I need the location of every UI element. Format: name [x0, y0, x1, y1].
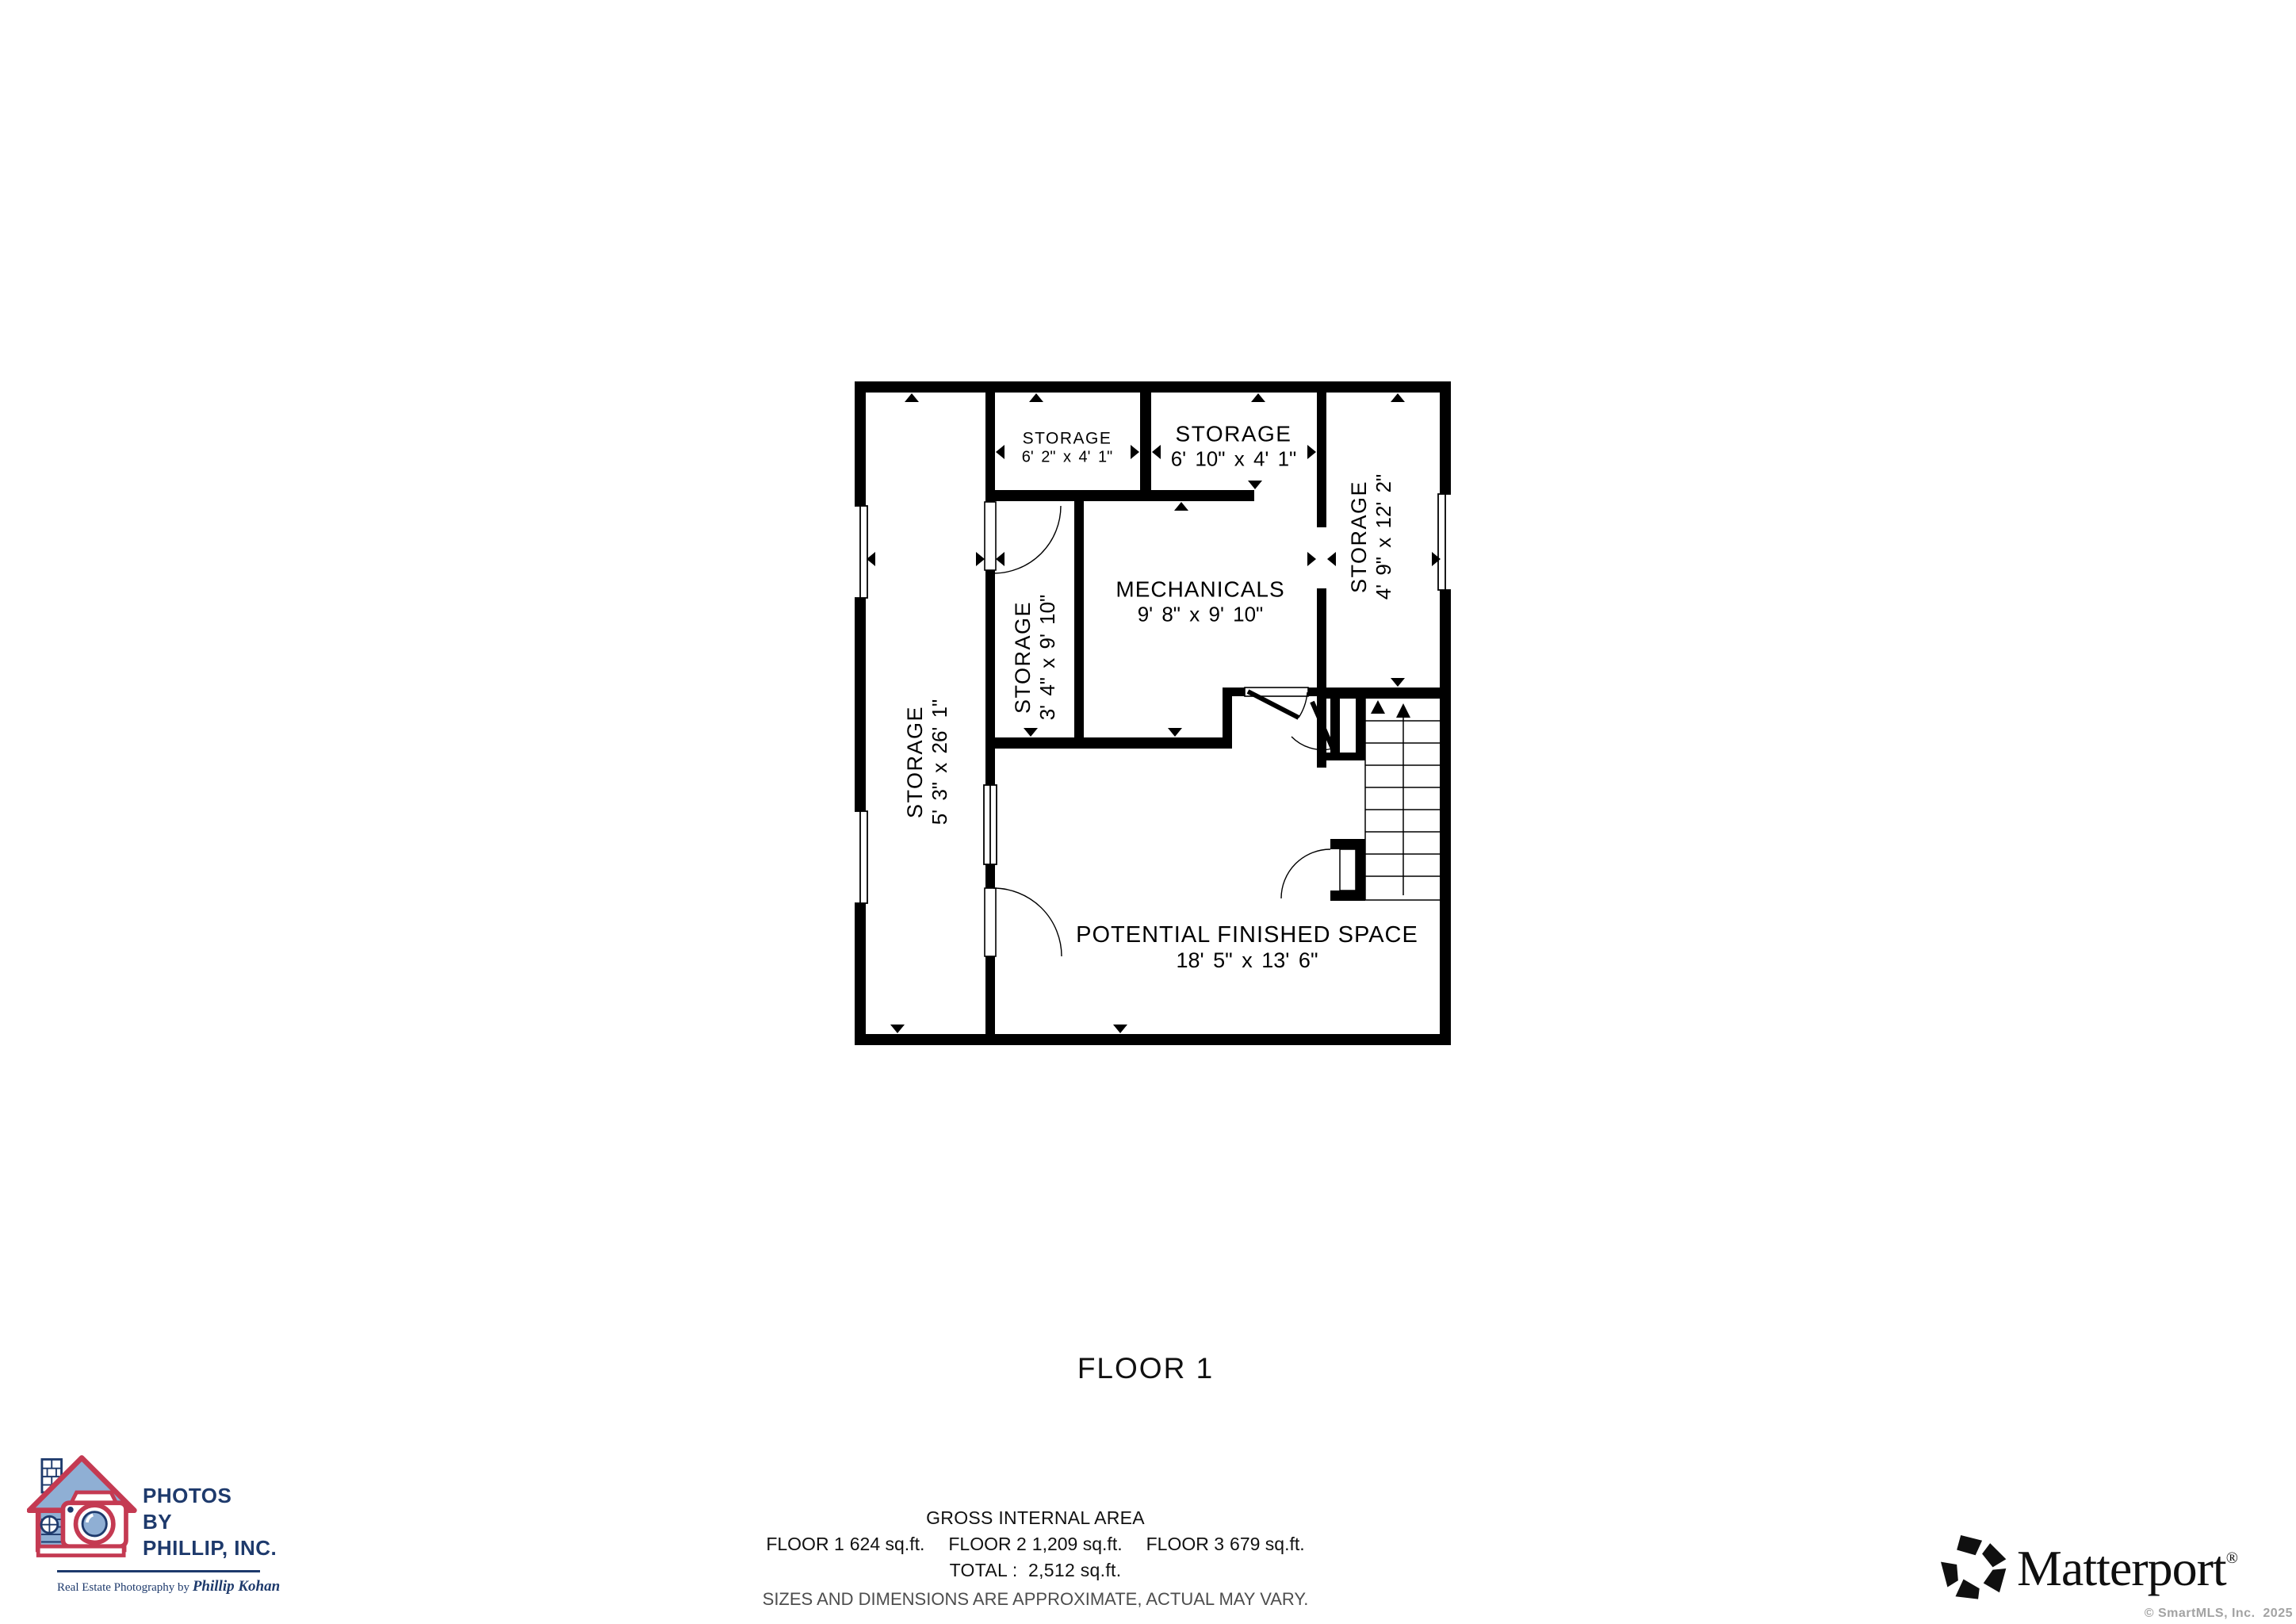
window-right — [1438, 494, 1451, 590]
room-label-storage-top2: STORAGE 6' 10" x 4' 1" — [1171, 422, 1297, 472]
stair-up-arrow-icon — [1396, 703, 1410, 718]
floor-area-2: FLOOR 21,209 sq.ft. — [948, 1534, 1122, 1555]
matterport-logo-icon — [1941, 1534, 2007, 1603]
summary-total: TOTAL : 2,512 sq.ft. — [763, 1560, 1309, 1581]
room-label-storage-top1: STORAGE 6' 2" x 4' 1" — [1022, 430, 1113, 467]
door-storage-mid — [985, 502, 996, 570]
summary-floor-areas: FLOOR 1624 sq.ft. FLOOR 21,209 sq.ft. FL… — [763, 1534, 1309, 1555]
photographer-logo: PHOTOS BY PHILLIP, INC. Real Estate Phot… — [27, 1453, 289, 1603]
copyright-text: © SmartMLS, Inc. 2025 — [2145, 1607, 2293, 1621]
logo-divider — [57, 1570, 260, 1572]
staircase — [1365, 699, 1440, 900]
floor-plan: STORAGE 5' 3" x 26' 1" STORAGE 3' 4" x 9… — [855, 381, 1451, 1045]
room-label-mechanicals: MECHANICALS 9' 8" x 9' 10" — [1115, 577, 1284, 627]
photographer-name: PHOTOS BY PHILLIP, INC. — [143, 1483, 277, 1561]
photographer-tagline: Real Estate Photography by Phillip Kohan — [57, 1578, 280, 1595]
window-left-upper — [855, 506, 867, 598]
matterport-branding: Matterport® © SmartMLS, Inc. 2025 — [1941, 1530, 2296, 1624]
floor-title: FLOOR 1 — [1077, 1352, 1214, 1385]
matterport-wordmark: Matterport® — [2017, 1543, 2238, 1594]
window-left-lower — [855, 811, 867, 903]
floor-plan-page: { "floor_plan": { "rooms": { "storage_le… — [0, 0, 2296, 1624]
area-summary: GROSS INTERNAL AREA FLOOR 1624 sq.ft. FL… — [763, 1507, 1309, 1610]
floor-area-3: FLOOR 3679 sq.ft. — [1146, 1534, 1305, 1555]
registered-mark: ® — [2226, 1549, 2238, 1567]
house-camera-icon — [27, 1453, 140, 1561]
door-stair-closet — [1281, 849, 1330, 898]
floor-area-1: FLOOR 1624 sq.ft. — [766, 1534, 924, 1555]
summary-disclaimer: SIZES AND DIMENSIONS ARE APPROXIMATE, AC… — [763, 1589, 1309, 1610]
room-label-potential-finished-space: POTENTIAL FINISHED SPACE 18' 5" x 13' 6" — [1076, 922, 1418, 973]
room-label-storage-left: STORAGE 5' 3" x 26' 1" — [903, 699, 952, 825]
door-finished-space — [985, 888, 996, 956]
stair-up-arrow-bold-icon — [1371, 700, 1385, 714]
room-label-storage-mid: STORAGE 3' 4" x 9' 10" — [1011, 595, 1060, 721]
summary-heading: GROSS INTERNAL AREA — [763, 1507, 1309, 1529]
room-label-storage-right: STORAGE 4' 9" x 12' 2" — [1347, 474, 1396, 600]
